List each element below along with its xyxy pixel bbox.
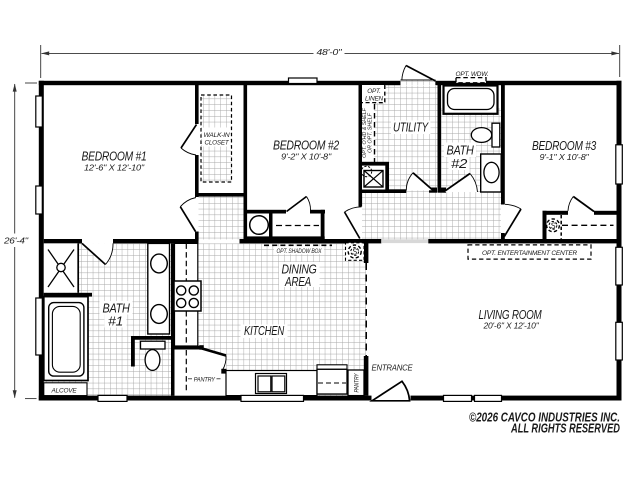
svg-text:9'-2" X 10'-8": 9'-2" X 10'-8" <box>281 152 332 162</box>
svg-text:OPT.: OPT. <box>367 88 381 95</box>
svg-text:BEDROOM #3: BEDROOM #3 <box>532 139 596 153</box>
svg-text:OPT. ENTERTAINMENT CENTER: OPT. ENTERTAINMENT CENTER <box>482 250 577 257</box>
svg-text:CLOSET: CLOSET <box>205 139 230 146</box>
svg-text:BATH: BATH <box>103 302 131 316</box>
svg-text:PANTRY: PANTRY <box>354 373 361 393</box>
svg-text:48'-0": 48'-0" <box>317 47 343 57</box>
svg-text:S: S <box>550 221 556 230</box>
svg-text:BEDROOM #1: BEDROOM #1 <box>82 150 147 164</box>
svg-text:UTILITY: UTILITY <box>393 121 430 135</box>
svg-text:OPT. WDW.: OPT. WDW. <box>456 71 489 78</box>
svg-text:PANTRY: PANTRY <box>194 377 216 384</box>
svg-text:OPT. SHADOW BOX: OPT. SHADOW BOX <box>277 248 323 255</box>
svg-text:#2: #2 <box>451 157 467 171</box>
svg-text:LINEN: LINEN <box>365 95 383 102</box>
svg-text:BATH: BATH <box>447 144 475 158</box>
svg-text:ENTRANCE: ENTRANCE <box>372 362 413 372</box>
svg-text:9'-1" X 10'-8": 9'-1" X 10'-8" <box>540 152 590 162</box>
svg-text:S: S <box>352 248 358 257</box>
svg-text:AREA: AREA <box>284 275 311 289</box>
svg-text:20'-6" X 12'-10": 20'-6" X 12'-10" <box>483 320 540 330</box>
svg-text:KITCHEN: KITCHEN <box>244 324 285 338</box>
svg-text:ALCOVE: ALCOVE <box>51 387 78 394</box>
svg-text:WALK-IN: WALK-IN <box>204 132 230 139</box>
svg-text:BEDROOM #2: BEDROOM #2 <box>273 139 339 153</box>
svg-text:ALL RIGHTS RESERVED: ALL RIGHTS RESERVED <box>510 421 620 435</box>
svg-text:26'-4": 26'-4" <box>3 236 29 246</box>
svg-text:OR OPT. SHELF: OR OPT. SHELF <box>368 112 374 153</box>
svg-text:#1: #1 <box>108 315 123 329</box>
svg-text:12'-6" X 12'-10": 12'-6" X 12'-10" <box>84 163 145 173</box>
